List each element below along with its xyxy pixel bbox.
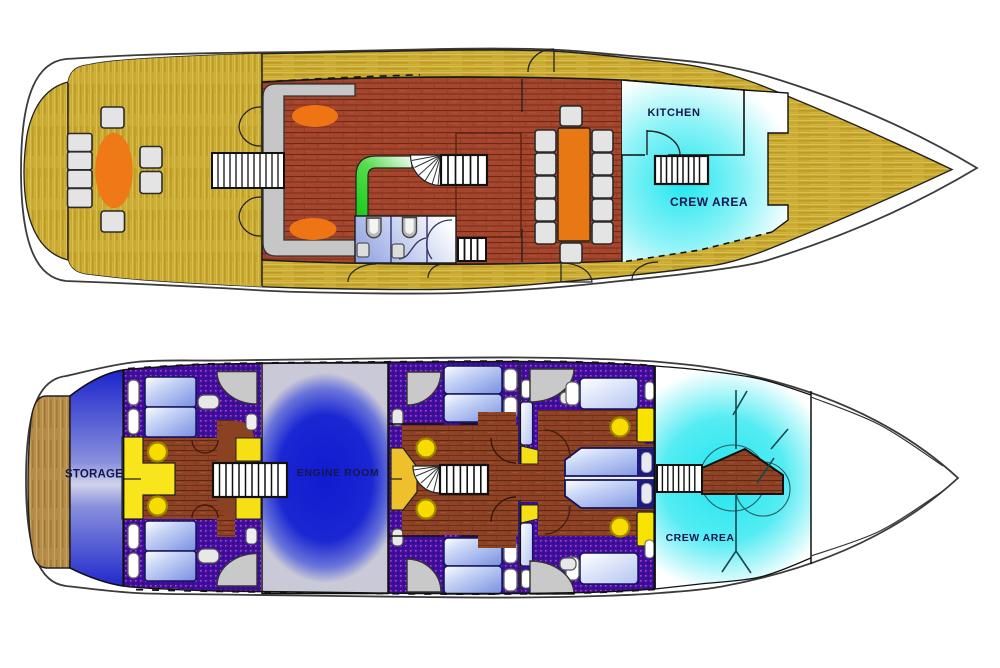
svg-text:STORAGE: STORAGE — [65, 469, 123, 481]
svg-text:ENGINE ROOM: ENGINE ROOM — [297, 467, 379, 479]
svg-text:CREW AREA: CREW AREA — [666, 532, 735, 544]
svg-text:KITCHEN: KITCHEN — [647, 107, 700, 119]
svg-text:CREW AREA: CREW AREA — [670, 195, 748, 209]
